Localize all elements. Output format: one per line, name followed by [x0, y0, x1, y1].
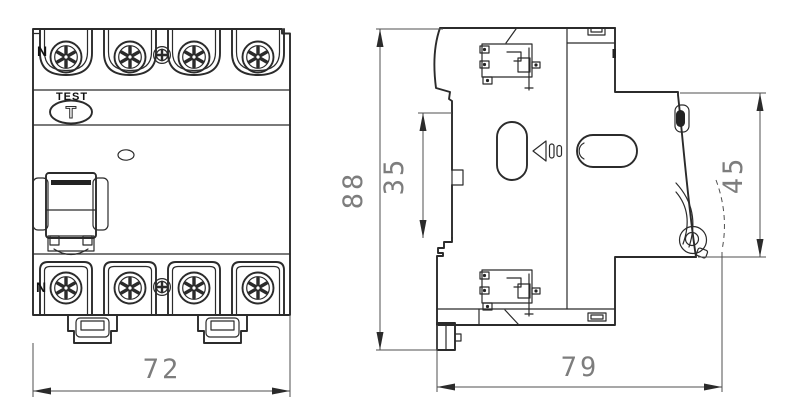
side-oval-slot	[497, 122, 527, 180]
top-notch	[588, 28, 605, 35]
status-indicator-window	[118, 150, 134, 160]
side-body-outline	[434, 28, 696, 325]
dim-value-88: 88	[338, 171, 369, 210]
terminal-screw-icon	[51, 42, 82, 73]
front-view: N TEST T	[33, 29, 290, 397]
terminal-mechanism-top	[480, 44, 540, 90]
handle-grip-stripe	[51, 180, 91, 185]
terminal-tab	[40, 262, 92, 315]
test-button: TEST T	[50, 91, 92, 124]
terminal-screw-icon	[243, 42, 274, 73]
dim-value-79: 79	[561, 352, 600, 383]
mounting-clip	[68, 315, 117, 343]
din-clip	[437, 323, 461, 350]
terminal-screw-icon	[179, 42, 210, 73]
dim-value-45: 45	[718, 156, 749, 195]
toggle-handle	[33, 173, 108, 255]
side-view: 88 35 45 79	[338, 28, 766, 392]
neutral-label-bottom: N	[36, 279, 46, 295]
rcd-dimension-drawing: N TEST T	[0, 0, 787, 414]
dim-value-35: 35	[379, 157, 410, 196]
arrow-indicator-icon	[533, 141, 562, 161]
drawing-canvas: N TEST T	[0, 0, 787, 414]
phillips-screw-icon	[154, 47, 171, 64]
phillips-screw-icon	[154, 279, 171, 296]
mounting-clip	[198, 315, 247, 343]
terminal-tab	[104, 262, 156, 315]
terminal-screw-icon	[179, 273, 210, 304]
side-toggle-pill	[577, 135, 637, 167]
terminal-screw-icon	[243, 273, 274, 304]
side-internal-lines	[437, 29, 615, 325]
top-terminals: N	[37, 29, 284, 75]
terminal-screw-icon	[51, 273, 82, 304]
terminal-tab	[168, 262, 220, 315]
din-rail-stop	[452, 170, 463, 185]
test-button-glyph: T	[66, 103, 77, 122]
bottom-terminals: N	[36, 262, 284, 315]
dimension-rail-35: 35	[379, 113, 452, 238]
terminal-tab	[232, 262, 284, 315]
terminal-screw-icon	[115, 273, 146, 304]
dim-value-72: 72	[143, 354, 182, 385]
terminal-screw-icon	[115, 42, 146, 73]
dimension-width-72: 72	[33, 315, 290, 397]
neutral-label-top: N	[37, 43, 47, 59]
